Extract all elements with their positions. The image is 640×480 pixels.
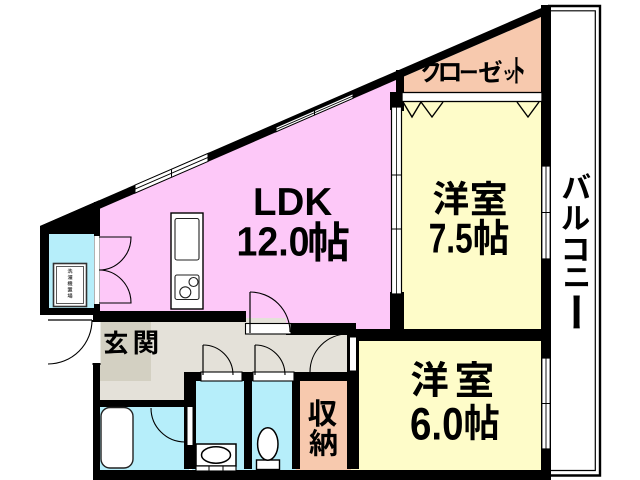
svg-text:6.0: 6.0	[410, 399, 464, 450]
svg-text:7.5: 7.5	[429, 214, 473, 261]
svg-text:12.0: 12.0	[237, 219, 310, 265]
